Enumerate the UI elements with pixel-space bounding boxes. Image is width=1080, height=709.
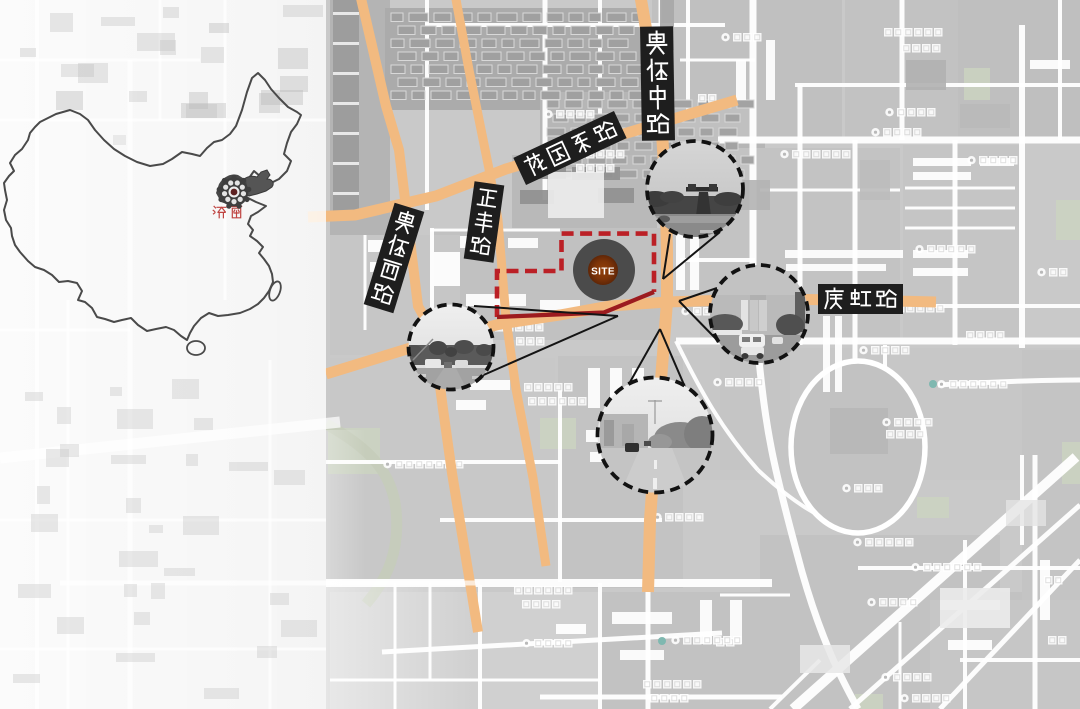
svg-text:SITE: SITE: [591, 267, 615, 278]
